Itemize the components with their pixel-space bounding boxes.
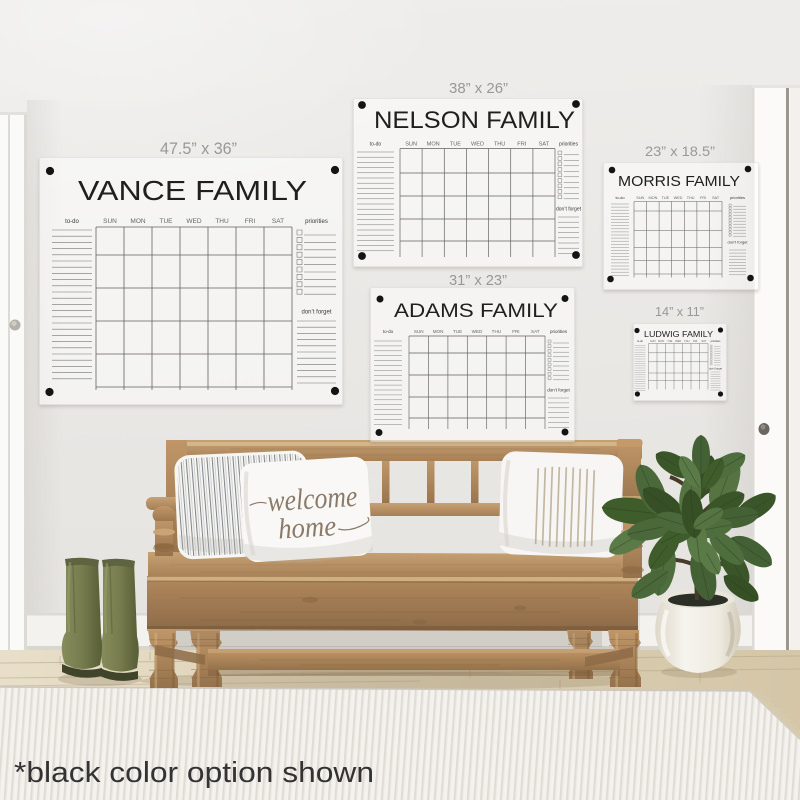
svg-text:*black color option shown: *black color option shown — [14, 757, 374, 789]
